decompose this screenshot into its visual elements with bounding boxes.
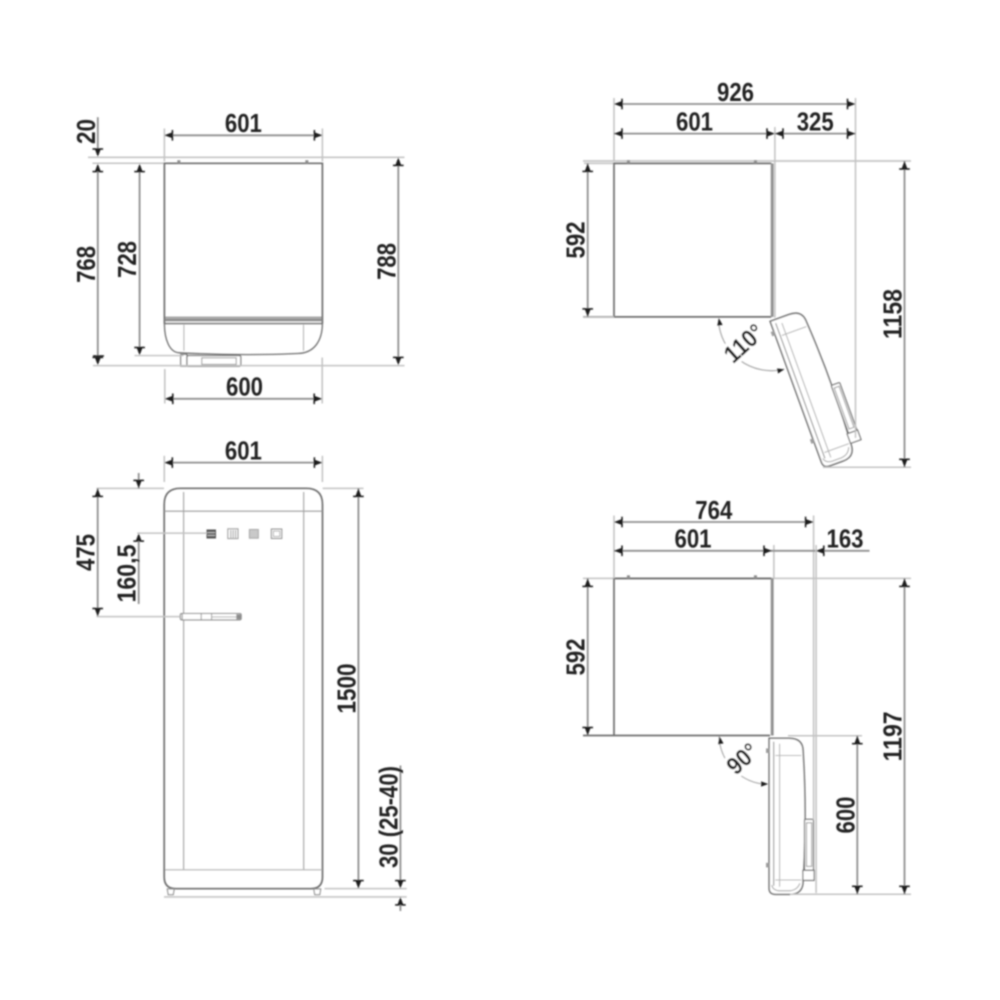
svg-text:601: 601 [225,437,262,465]
svg-text:1158: 1158 [880,289,908,339]
svg-text:163: 163 [827,526,864,554]
svg-text:601: 601 [675,526,712,554]
svg-text:788: 788 [373,243,401,280]
svg-text:325: 325 [797,108,834,136]
svg-text:1197: 1197 [880,711,908,761]
svg-text:600: 600 [832,797,860,834]
svg-text:160,5: 160,5 [114,545,142,603]
svg-text:601: 601 [225,110,262,138]
svg-text:926: 926 [717,79,754,107]
svg-text:768: 768 [73,246,101,283]
svg-text:592: 592 [563,222,591,259]
svg-text:592: 592 [563,639,591,676]
svg-text:764: 764 [695,497,733,525]
svg-text:20: 20 [73,119,101,144]
svg-text:475: 475 [73,534,101,571]
svg-text:728: 728 [114,241,142,278]
svg-text:600: 600 [226,374,263,402]
svg-text:1500: 1500 [333,664,361,714]
svg-text:601: 601 [676,108,713,136]
svg-text:30 (25-40): 30 (25-40) [375,766,403,868]
